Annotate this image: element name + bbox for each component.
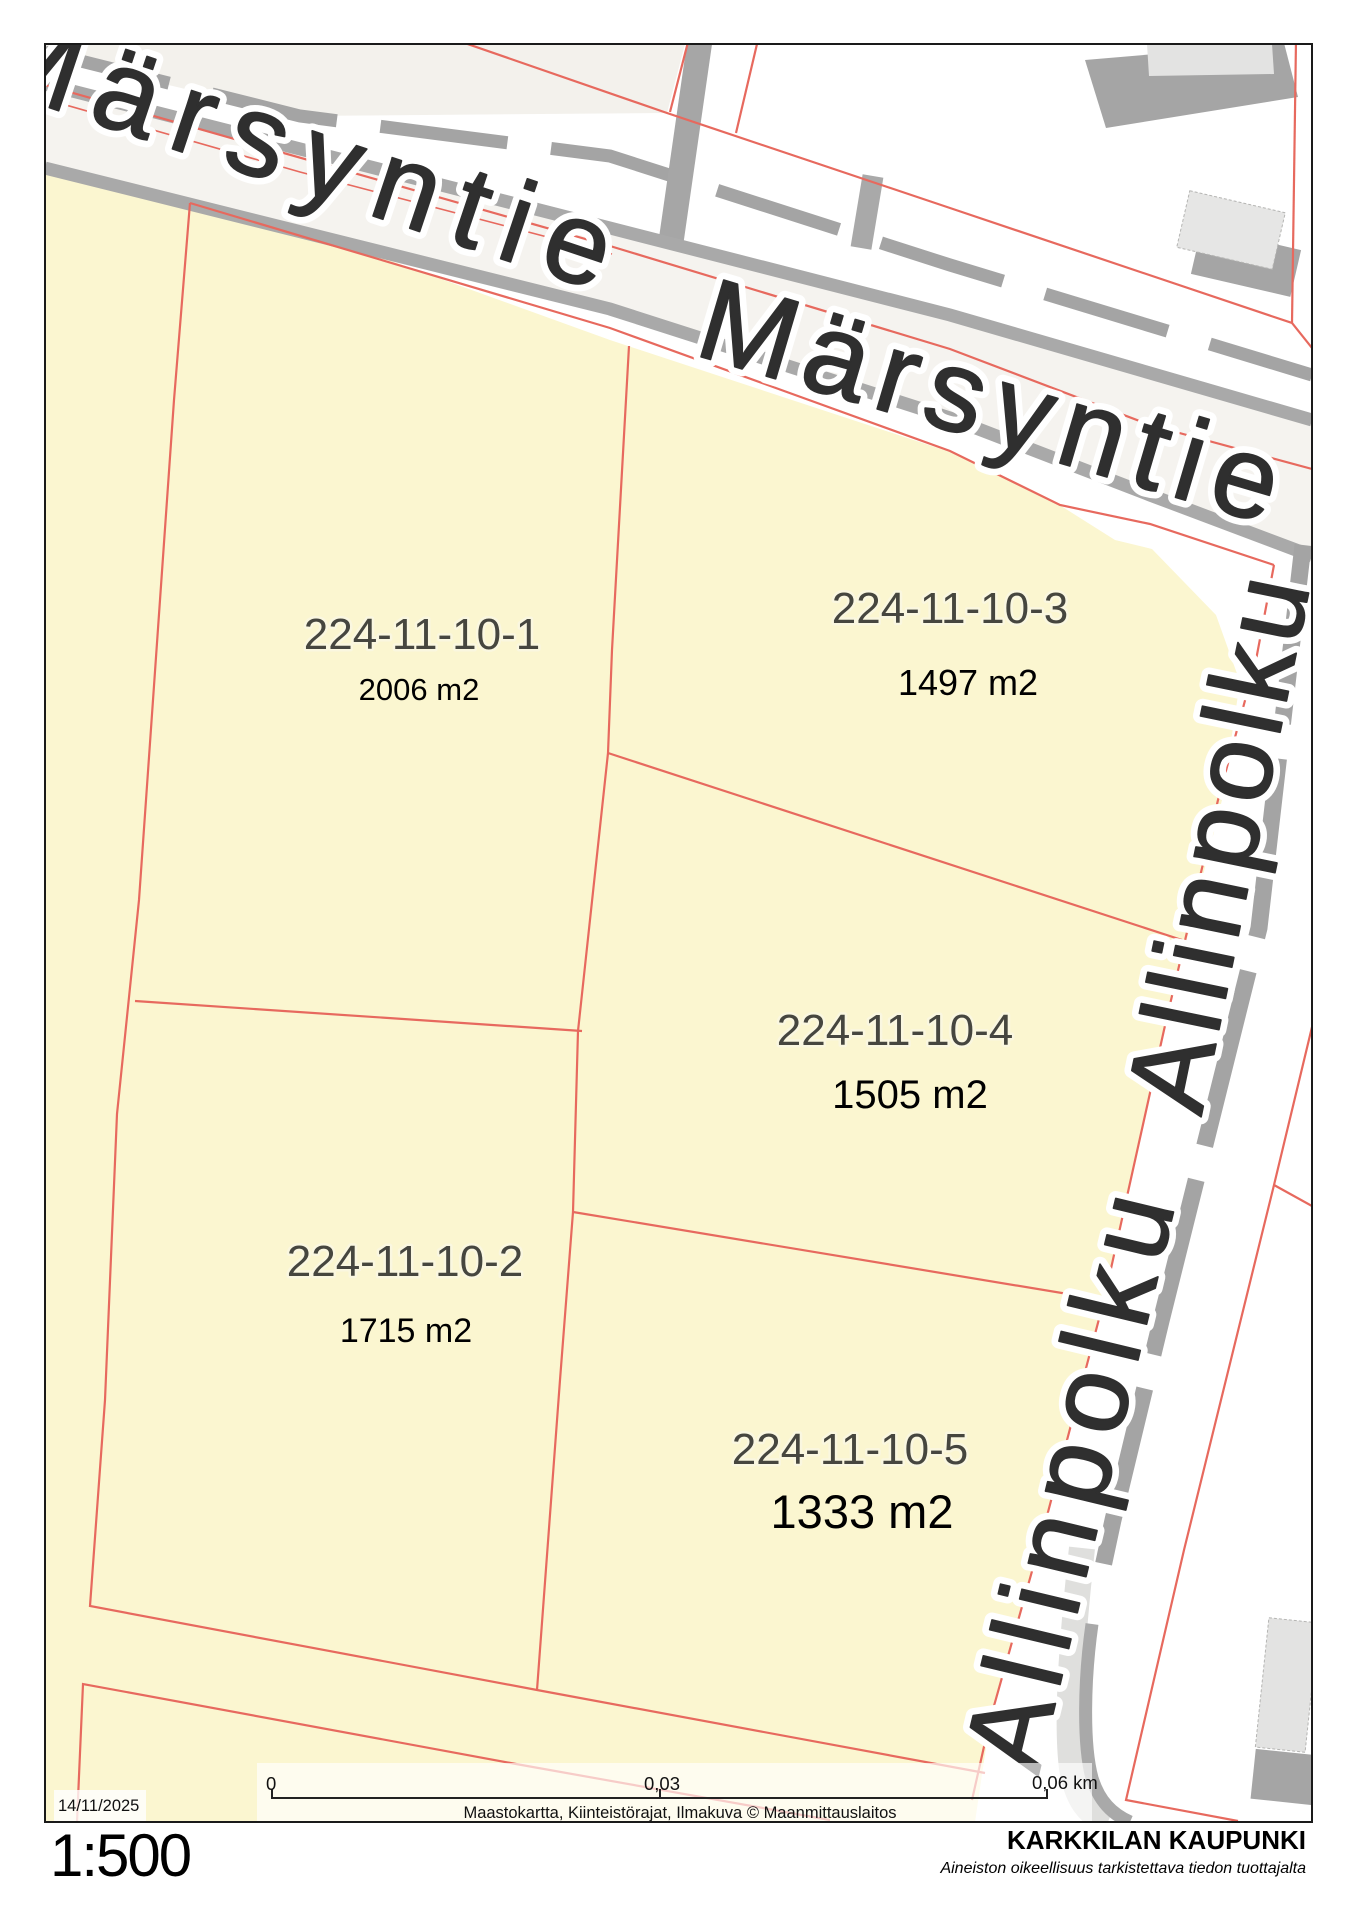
- svg-text:224-11-10-1: 224-11-10-1: [304, 610, 540, 659]
- svg-text:1497 m2: 1497 m2: [898, 662, 1038, 703]
- svg-text:Maastokartta, Kiinteistörajat,: Maastokartta, Kiinteistörajat, Ilmakuva …: [463, 1804, 896, 1822]
- svg-text:1505 m2: 1505 m2: [832, 1073, 988, 1117]
- svg-text:224-11-10-2: 224-11-10-2: [287, 1237, 523, 1286]
- svg-text:1333 m2: 1333 m2: [771, 1485, 954, 1538]
- svg-text:224-11-10-4: 224-11-10-4: [777, 1006, 1013, 1055]
- svg-text:14/11/2025: 14/11/2025: [58, 1797, 139, 1815]
- svg-text:224-11-10-3: 224-11-10-3: [832, 584, 1068, 633]
- svg-text:2006 m2: 2006 m2: [359, 672, 480, 707]
- svg-text:1:500: 1:500: [50, 1822, 191, 1889]
- svg-text:0: 0: [266, 1773, 276, 1794]
- svg-text:224-11-10-5: 224-11-10-5: [732, 1425, 968, 1474]
- svg-text:1715 m2: 1715 m2: [340, 1312, 472, 1350]
- svg-text:0,06 km: 0,06 km: [1032, 1772, 1098, 1793]
- svg-text:Aineiston oikeellisuus tarkist: Aineiston oikeellisuus tarkistettava tie…: [939, 1860, 1306, 1877]
- svg-text:0,03: 0,03: [644, 1773, 680, 1794]
- svg-text:KARKKILAN KAUPUNKI: KARKKILAN KAUPUNKI: [1007, 1825, 1306, 1855]
